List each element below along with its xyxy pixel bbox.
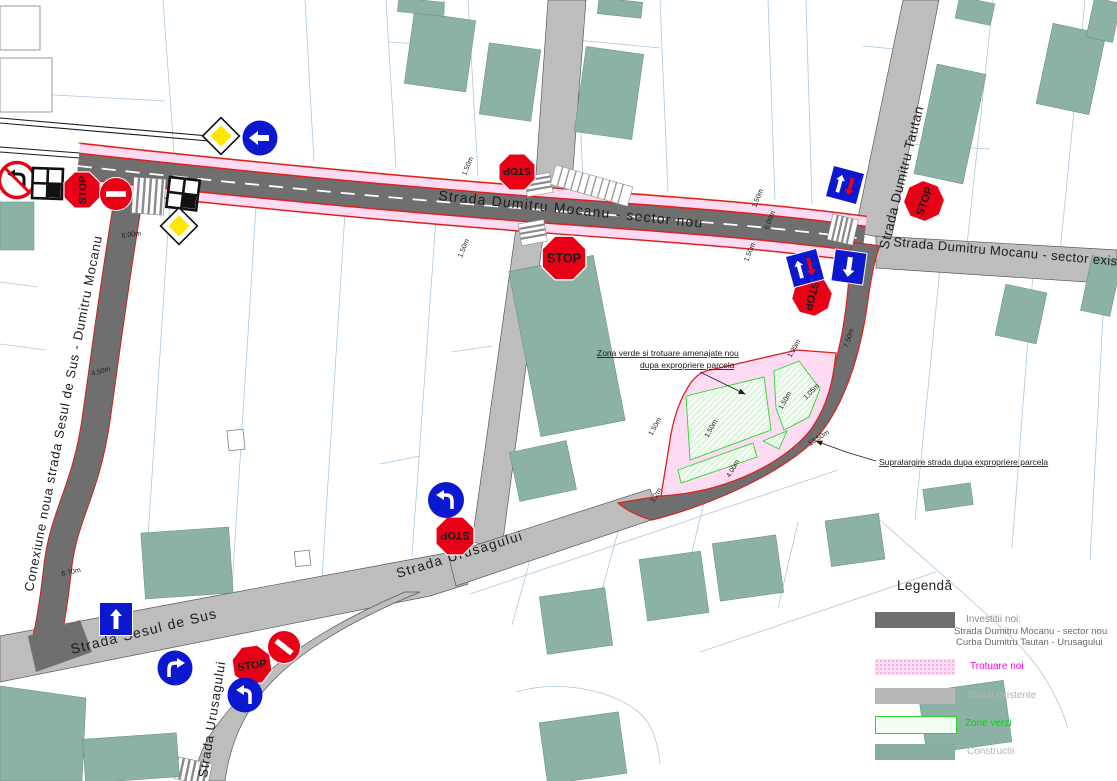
down-arrow-sign-icon [831,249,867,285]
building [639,551,709,621]
legend-sublabel: Curba Dumitru Tautan - Urusagului [956,637,1103,648]
priority-oncoming-sign-icon [825,165,864,204]
legend-label: Trotuare noi [970,661,1024,672]
legend-item-constructii: Constructii [872,744,1117,762]
svg-text:STOP: STOP [547,252,581,266]
svg-text:1.50m: 1.50m [648,417,664,437]
legend-label: Investitii noi: [966,614,1021,625]
building [955,0,995,26]
legend-swatch-strazi [875,688,955,704]
grid-symbol-icon [32,168,63,199]
building [141,527,233,599]
legend: Legendă Investitii noi: Strada Dumitru M… [872,578,1117,778]
annotation-leader [816,441,876,461]
legend-swatch-trotuare [875,659,955,675]
legend-label: Strazi existente [968,690,1036,701]
curve-right-sign-icon [158,651,193,686]
building [83,733,180,781]
building [597,0,642,18]
priority-road-sign-icon [203,118,240,155]
building [509,441,576,502]
building [397,0,444,16]
no-entry-sign-icon [100,178,133,211]
ahead-only-sign-icon [100,603,133,636]
building [995,284,1047,344]
svg-text:1.50m: 1.50m [457,238,471,259]
priority-road-sign-icon [161,208,198,245]
legend-title: Legendă [897,578,1117,593]
plan-canvas: Strada Dumitru Mocanu - sector nou Strad… [0,0,1117,781]
annotation-zona-verde: Zona verde si trotuare amenajate nou [597,348,739,358]
svg-text:1.50m: 1.50m [461,156,475,177]
svg-text:STOP: STOP [440,529,470,541]
building [712,535,783,601]
stop-sign-icon: STOP [436,517,474,555]
building [0,686,86,781]
legend-sublabel: Strada Dumitru Mocanu - sector nou [954,626,1107,637]
building [1086,0,1117,42]
legend-label: Zone verzi [965,718,1012,729]
stop-sign-icon: STOP [499,154,535,190]
svg-text:STOP: STOP [78,176,89,204]
legend-swatch-constructii [875,744,955,760]
no-left-turn-sign-icon [0,163,35,198]
legend-swatch-investitii [875,612,955,628]
legend-item-strazi: Strazi existente [872,688,1117,706]
building [479,43,541,122]
building [509,255,625,436]
svg-text:STOP: STOP [503,165,531,176]
grid-symbol-icon [166,177,199,210]
svg-text:6.00m: 6.00m [121,230,141,240]
annotation-supralargire: Supralargire strada dupa expropriere par… [879,457,1048,467]
legend-label: Constructii [967,746,1014,757]
building [0,202,34,250]
road-conexiune-noua [28,190,130,672]
building [923,483,974,511]
turn-left-sign-icon [243,121,278,156]
legend-swatch-verzi [875,716,957,734]
stop-sign-icon: STOP [64,172,100,208]
building [825,513,885,566]
building [574,46,643,139]
legend-item-investitii: Investitii noi: Strada Dumitru Mocanu - … [872,612,1117,654]
turn-left-ahead-sign-icon [228,678,263,713]
legend-item-trotuare: Trotuare noi [872,659,1117,677]
building [404,12,475,92]
legend-item-verzi: Zone verzi [872,716,1117,734]
building [539,588,612,655]
building [539,712,627,781]
stop-sign-icon: STOP [542,236,586,280]
annotation-zona-verde-2: dupa expropriere parcela [640,360,735,370]
curve-left-sign-icon [428,482,464,518]
